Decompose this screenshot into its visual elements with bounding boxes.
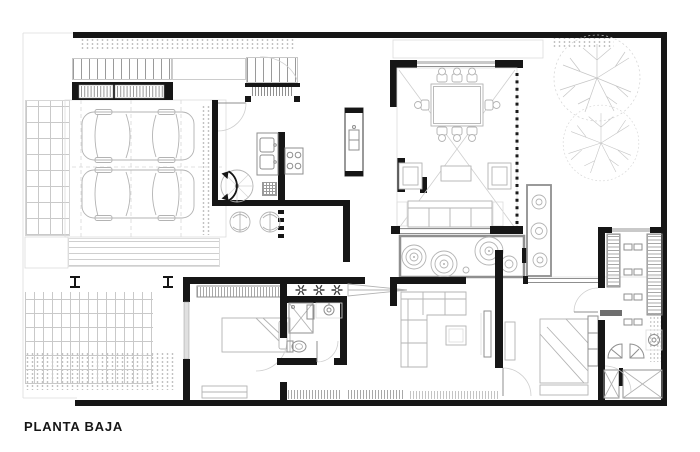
sectional-sofa [401, 292, 466, 367]
master-bedroom [505, 316, 598, 395]
walkin-door [574, 288, 598, 312]
plan-title: PLANTA BAJA [24, 419, 123, 434]
closet-drawers [624, 244, 642, 325]
master-bedroom-door [503, 368, 531, 396]
lounge-pouf-1 [230, 212, 250, 232]
tv-console [484, 311, 491, 357]
toilet-2 [608, 344, 622, 358]
kitchen-walls [212, 100, 350, 262]
bedroom1-window [184, 302, 189, 359]
column-marker-2 [163, 276, 173, 288]
lounge-pouf-2 [260, 212, 280, 232]
garage-storage [72, 82, 173, 100]
floor-plan: PLANTA BAJA [0, 0, 700, 452]
water-feature [391, 226, 533, 277]
bed-master [540, 319, 588, 395]
ramp-symbol [348, 284, 407, 296]
bathroom2 [604, 330, 662, 398]
terrace-planter [527, 185, 551, 276]
console-table [505, 322, 515, 360]
plan-drawing [0, 0, 700, 452]
entry-door [218, 103, 246, 131]
car-2 [82, 168, 194, 221]
bedside-shelf [588, 316, 598, 366]
toilet-1 [292, 341, 306, 352]
car-1 [82, 110, 194, 163]
living-room-furniture [397, 163, 511, 227]
kitchen-island [345, 108, 363, 176]
bedroom1-closet [197, 286, 282, 297]
column-marker-1 [70, 276, 80, 288]
bidet [630, 344, 644, 358]
tree-1 [554, 35, 640, 121]
sink-2 [649, 335, 660, 346]
bed-1 [222, 318, 290, 352]
entry-gate [245, 57, 300, 102]
dining-table-set [415, 68, 501, 142]
tree-2 [563, 105, 639, 181]
sink-1 [324, 305, 334, 315]
bedroom1 [183, 284, 290, 406]
